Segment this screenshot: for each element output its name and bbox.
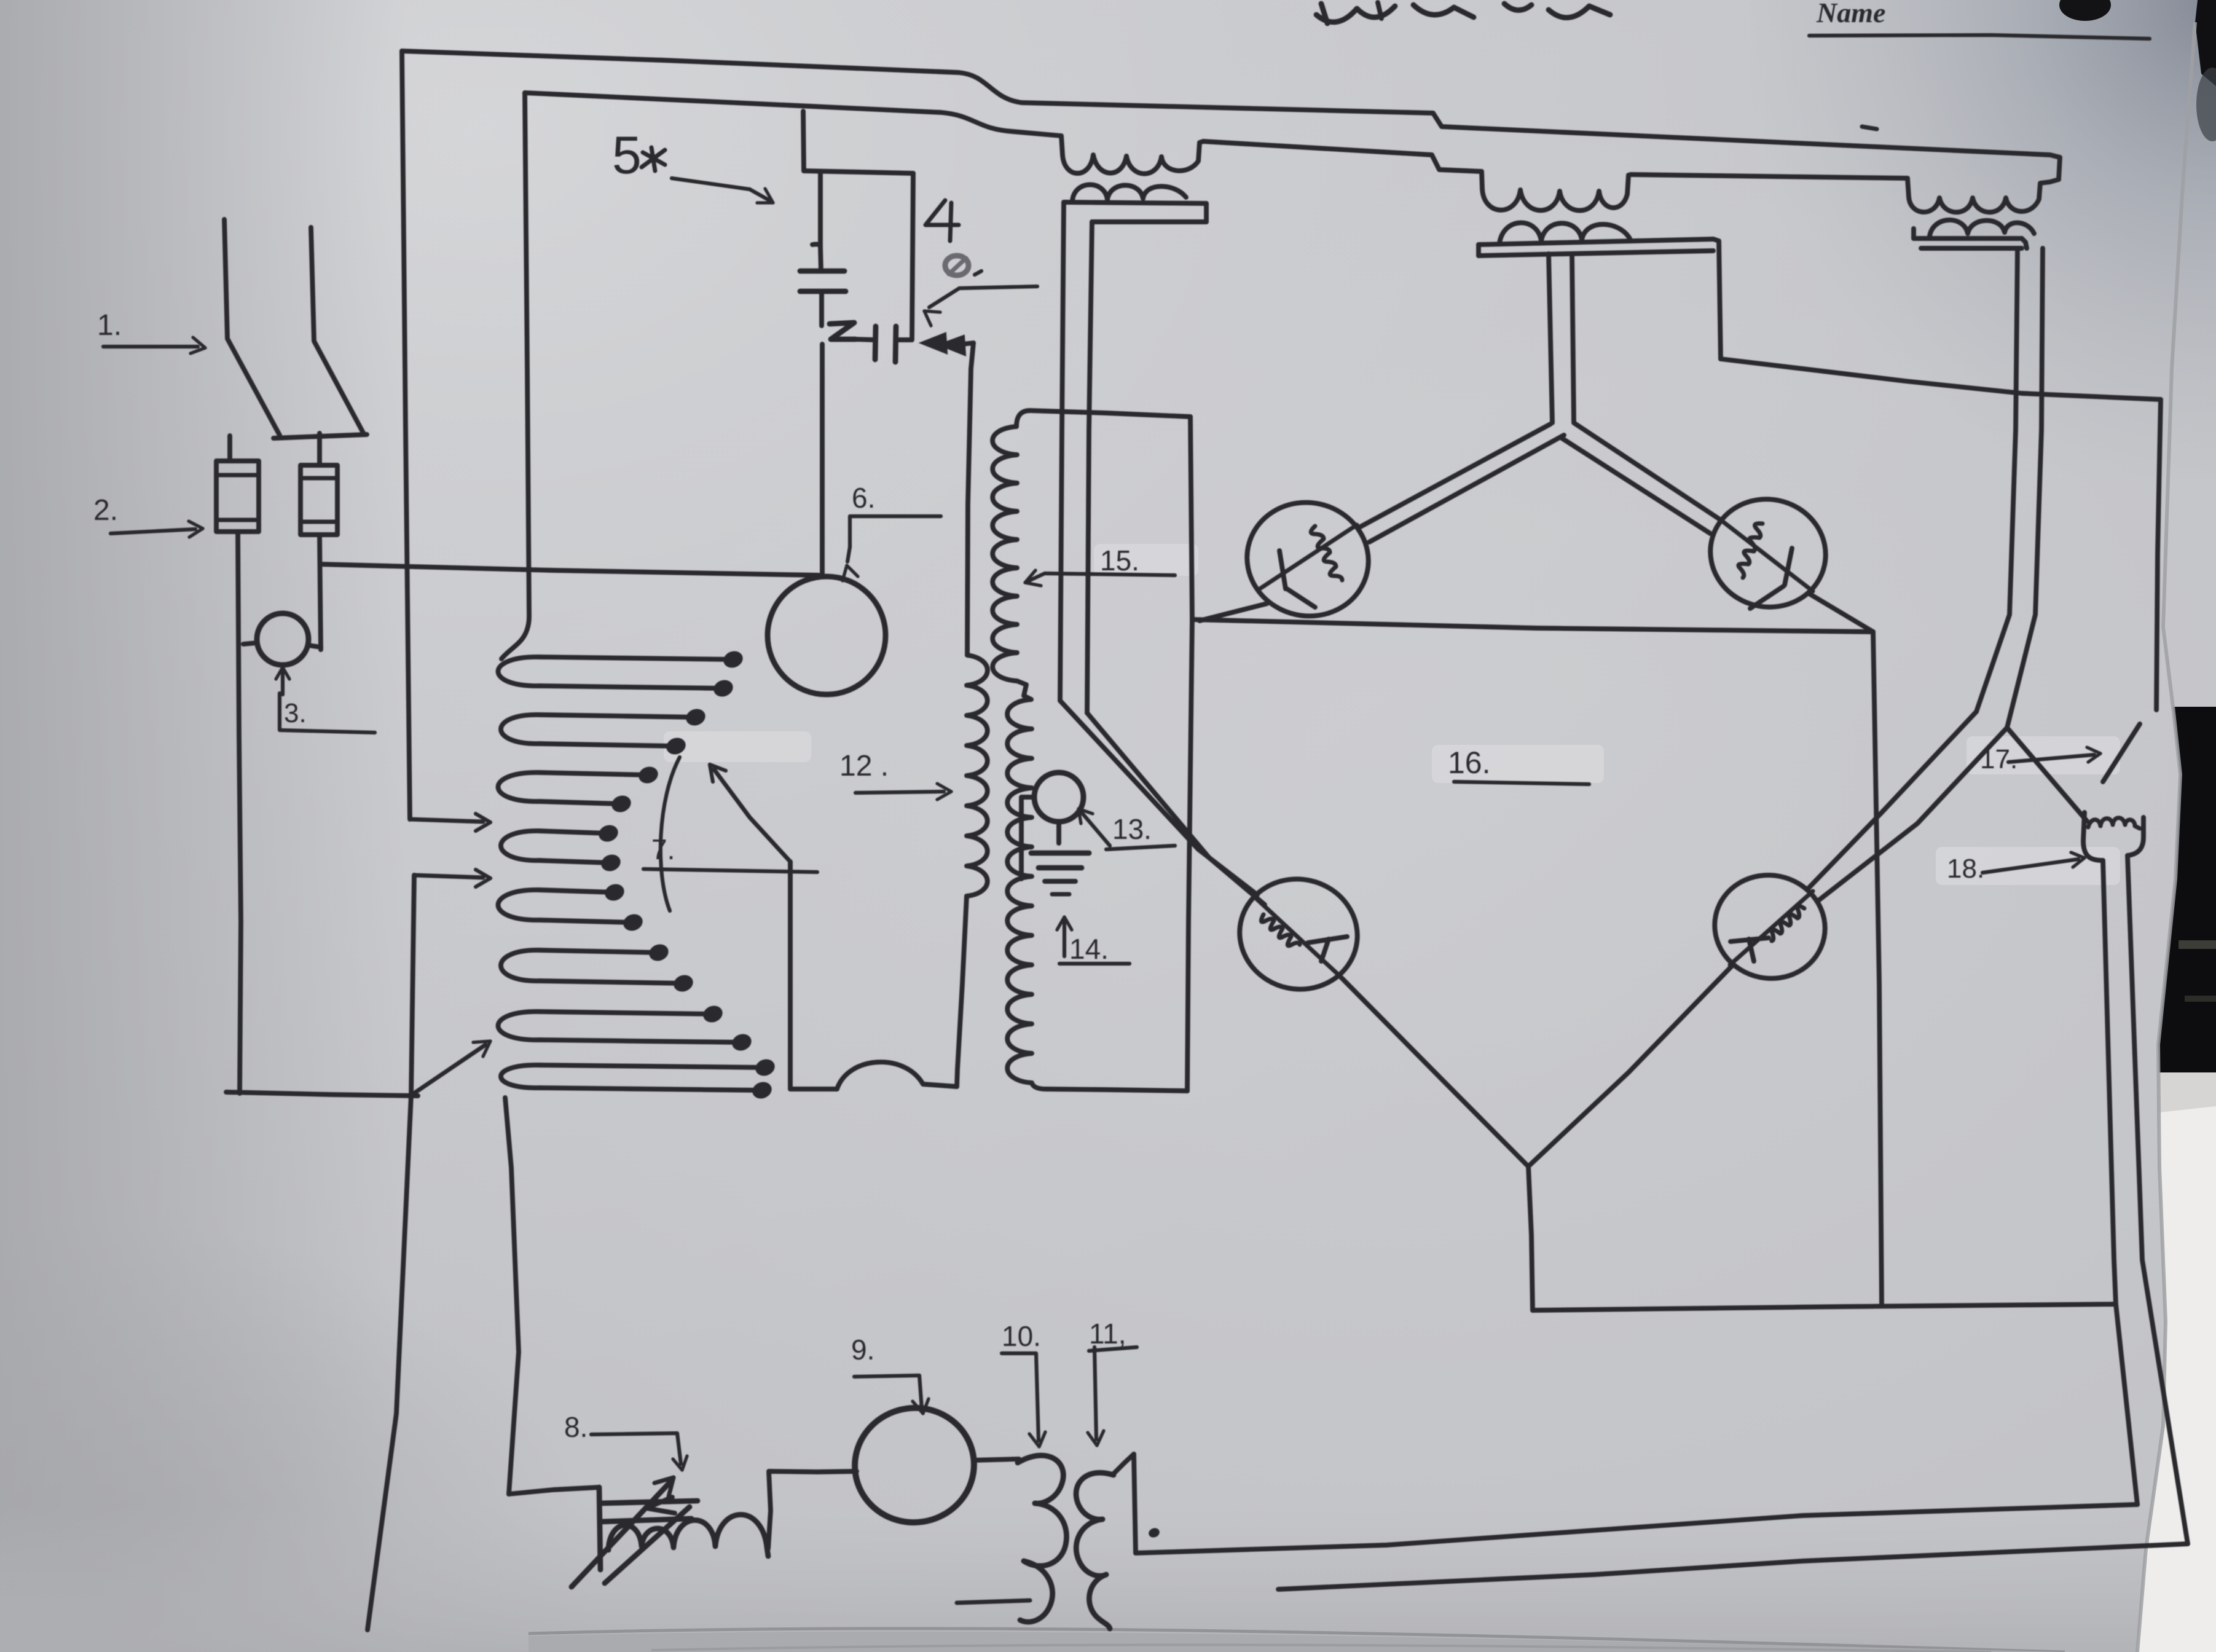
svg-text:13.: 13. bbox=[1112, 813, 1152, 845]
svg-text:5: 5 bbox=[612, 126, 642, 185]
svg-text:16.: 16. bbox=[1448, 745, 1491, 780]
svg-text:3.: 3. bbox=[284, 698, 307, 728]
svg-text:17.: 17. bbox=[1980, 744, 2018, 774]
svg-text:9.: 9. bbox=[851, 1334, 874, 1366]
svg-text:12 .: 12 . bbox=[839, 750, 889, 782]
svg-text:18.: 18. bbox=[1947, 854, 1984, 884]
svg-text:7.: 7. bbox=[651, 833, 675, 865]
svg-text:6.: 6. bbox=[852, 482, 875, 514]
svg-text:15.: 15. bbox=[1100, 545, 1139, 576]
svg-text:10.: 10. bbox=[1002, 1320, 1041, 1352]
svg-text:8.: 8. bbox=[564, 1411, 587, 1443]
svg-text:Name: Name bbox=[1816, 0, 1885, 28]
svg-text:1.: 1. bbox=[97, 309, 122, 342]
svg-text:2.: 2. bbox=[93, 494, 118, 527]
svg-text:14.: 14. bbox=[1069, 933, 1109, 965]
svg-text:11,: 11, bbox=[1089, 1318, 1126, 1350]
